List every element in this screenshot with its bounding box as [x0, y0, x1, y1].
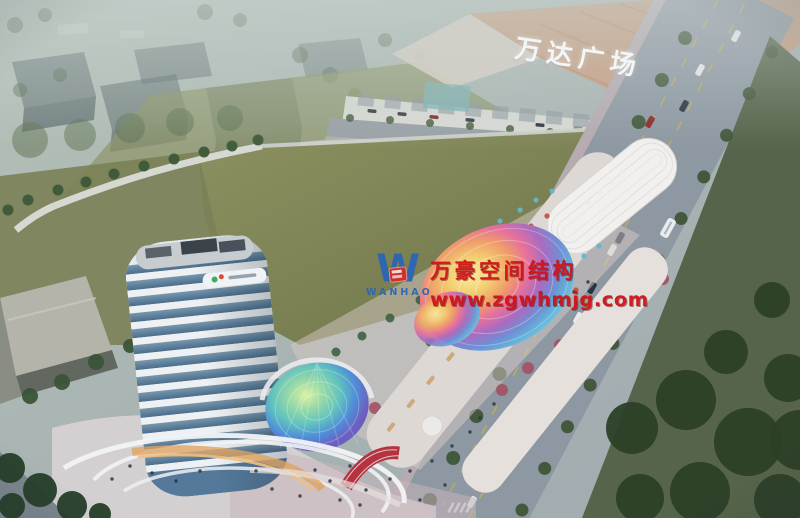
- watermark: W WANHAO 万豪空间结构 www.zgwhmjg.com: [366, 250, 626, 314]
- logo-red-badge-icon: [388, 266, 407, 283]
- rendering-canvas: 万达广场 W WANHAO 万豪空间结构 www.zgwhmjg.com: [0, 0, 800, 518]
- watermark-logo: W WANHAO: [366, 252, 430, 298]
- watermark-website: www.zgwhmjg.com: [430, 288, 649, 311]
- watermark-text: 万豪空间结构 www.zgwhmjg.com: [430, 255, 649, 311]
- watermark-company: 万豪空间结构: [430, 255, 649, 285]
